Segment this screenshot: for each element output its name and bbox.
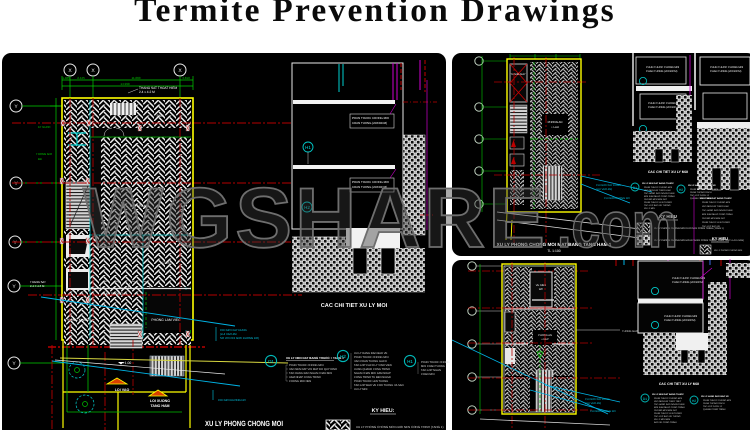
svg-text:CAC CHI TIET XU LY MOI: CAC CHI TIET XU LY MOI [321, 303, 388, 309]
svg-text:XU LY PHONG CHONG MOI: XU LY PHONG CHONG MOI [714, 249, 743, 252]
svg-text:CHONG MOI NEN DAT: CHONG MOI NEN DAT [654, 409, 678, 412]
svg-text:PHUN THUOC CHONG MOI: PHUN THUOC CHONG MOI [352, 116, 389, 120]
svg-text:XU LY HANG RAO BAO VE: XU LY HANG RAO BAO VE [354, 352, 388, 355]
svg-text:TAO LOP BAO VE: TAO LOP BAO VE [702, 225, 721, 228]
svg-text:.com: .com [557, 188, 678, 261]
svg-text:CONG TRINH TU BEN NGOAI: CONG TRINH TU BEN NGOAI [354, 376, 391, 379]
svg-text:CHAN TUONG (20X30CM): CHAN TUONG (20X30CM) [646, 70, 678, 73]
svg-text:CAC CHI TIET XU LY MOI: CAC CHI TIET XU LY MOI [648, 170, 688, 174]
svg-text:XUNG QUANH CONG TRINH: XUNG QUANH CONG TRINH [354, 368, 390, 371]
svg-text:PHUN THUOC LEN TUONG: PHUN THUOC LEN TUONG [354, 380, 388, 383]
svg-text:(LUI VAO 4M): (LUI VAO 4M) [585, 402, 601, 405]
svg-text:PHONG KHACH: PHONG KHACH [65, 318, 91, 322]
svg-text:TAO HANG RAO NGAN CHAN MOI: TAO HANG RAO NGAN CHAN MOI [289, 372, 332, 375]
svg-text:PHUN THUOC LEN TUONG: PHUN THUOC LEN TUONG [654, 412, 682, 415]
svg-text:H2: H2 [340, 354, 346, 359]
svg-text:BAO VE CONG TRINH: BAO VE CONG TRINH [654, 421, 677, 424]
svg-text:PHUN THUOC CHONG MOI: PHUN THUOC CHONG MOI [702, 201, 730, 204]
svg-text:XU LY MOI NEN: XU LY MOI NEN [654, 418, 671, 421]
svg-text:KT NUOC: KT NUOC [38, 125, 51, 129]
svg-text:PHUN THUOC CHONG MOI: PHUN THUOC CHONG MOI [710, 66, 744, 69]
svg-text:TAO LOP CACH LY: TAO LOP CACH LY [703, 405, 723, 408]
svg-text:XU LY NEN DAT BANG THUOC: XU LY NEN DAT BANG THUOC [652, 393, 684, 396]
svg-text:TAO LOP CACH LY: TAO LOP CACH LY [690, 194, 710, 197]
svg-text:PHONG AN: PHONG AN [548, 120, 563, 124]
svg-text:VAO NEN DAT TANG TRET: VAO NEN DAT TANG TRET [654, 400, 682, 403]
svg-text:THONG GIO: THONG GIO [36, 152, 53, 156]
svg-text:Termite Prevention Drawings: Termite Prevention Drawings [134, 0, 616, 29]
svg-text:PHUN THUOC CHONG: PHUN THUOC CHONG [421, 361, 450, 364]
svg-text:NGAN CHAN MOI XAM NHAP: NGAN CHAN MOI XAM NHAP [354, 372, 391, 375]
svg-text:SAN: SAN [157, 114, 165, 118]
svg-text:PHUN THUOC LEN TUONG: PHUN THUOC LEN TUONG [702, 221, 730, 224]
svg-text:+ LAU: + LAU [551, 125, 559, 129]
svg-text:MOI XAM NHAP CONG TRINH: MOI XAM NHAP CONG TRINH [702, 213, 733, 216]
svg-text:CHAN TUONG (20X30CM): CHAN TUONG (20X30CM) [352, 121, 387, 125]
svg-text:3.810: 3.810 [182, 76, 190, 80]
svg-text:PHUN THUOC CHONG MOI: PHUN THUOC CHONG MOI [654, 397, 682, 400]
svg-text:XU LY NEN DAT BANG THUOC: XU LY NEN DAT BANG THUOC [642, 182, 674, 185]
svg-text:SO VOI CHI GIOI DUONG DO): SO VOI CHI GIOI DUONG DO) [220, 336, 259, 340]
svg-text:PHUN THUOC CHONG MOI: PHUN THUOC CHONG MOI [690, 188, 718, 191]
svg-text:BD: BD [38, 157, 42, 161]
svg-text:KY HIEU:: KY HIEU: [372, 408, 395, 414]
svg-text:XU LY PHONG CHONG MOI DUOI NEN: XU LY PHONG CHONG MOI DUOI NEN CONG TRIN… [356, 425, 443, 429]
svg-text:XU LY HANG RAO BAO VE: XU LY HANG RAO BAO VE [701, 395, 729, 398]
svg-text:D1: D1 [268, 359, 274, 364]
svg-text:PHUN THUOC CHONG MOI: PHUN THUOC CHONG MOI [289, 364, 324, 367]
svg-text:PHUN THUOC CHONG MOI: PHUN THUOC CHONG MOI [703, 399, 731, 402]
svg-text:CHAN MOI: CHAN MOI [421, 373, 435, 376]
svg-text:MOI CHAN TUONG: MOI CHAN TUONG [421, 365, 445, 368]
svg-text:XU LY MOI: XU LY MOI [354, 388, 368, 391]
svg-text:2.4 x 4.2 M: 2.4 x 4.2 M [139, 90, 155, 94]
svg-text:TAO LOP NGAN: TAO LOP NGAN [421, 369, 441, 372]
svg-text:TANG HAM: TANG HAM [150, 404, 169, 408]
svg-text:THANG MAY: THANG MAY [510, 73, 525, 76]
svg-text:LOI VAO: LOI VAO [115, 388, 130, 392]
svg-text:TAO LOP CACH LY VINH VIEN: TAO LOP CACH LY VINH VIEN [354, 364, 392, 367]
svg-text:1.485: 1.485 [62, 76, 70, 80]
svg-text:MOI XAM NHAP CONG TRINH: MOI XAM NHAP CONG TRINH [654, 406, 685, 409]
svg-text:CHI GIOI XAY DUNG: CHI GIOI XAY DUNG [585, 398, 610, 401]
svg-text:XU LY NEN DAT BANG THUOC: XU LY NEN DAT BANG THUOC [700, 197, 732, 200]
svg-text:H1: H1 [305, 145, 311, 150]
svg-text:PHONG LAM VIEC: PHONG LAM VIEC [151, 318, 181, 322]
svg-text:WC: WC [539, 288, 543, 291]
svg-text:CHAN TUONG (20X30CM): CHAN TUONG (20X30CM) [664, 319, 696, 322]
svg-text:2.4 X 4.6 M: 2.4 X 4.6 M [30, 284, 45, 288]
svg-text:CHAN TUONG (20X30CM): CHAN TUONG (20X30CM) [672, 281, 704, 284]
svg-text:+1.00: +1.00 [123, 361, 132, 365]
svg-text:VAO NEN DAT TANG HAM: VAO NEN DAT TANG HAM [702, 205, 729, 208]
svg-text:PHUN THUOC CHONG MOI: PHUN THUOC CHONG MOI [354, 356, 389, 359]
svg-text:11.060: 11.060 [132, 76, 141, 80]
svg-text:CHI GIOI DUONG DO: CHI GIOI DUONG DO [218, 398, 246, 402]
svg-text:CHAN TUONG GACH: CHAN TUONG GACH [690, 191, 712, 194]
svg-text:CHI GIOI DUONG DO: CHI GIOI DUONG DO [590, 410, 616, 413]
svg-text:CHAN TUONG GACH: CHAN TUONG GACH [703, 402, 725, 405]
svg-text:TAO HANG RAO NGAN CHAN: TAO HANG RAO NGAN CHAN [702, 209, 733, 212]
svg-text:14.990: 14.990 [120, 82, 130, 86]
svg-text:CHAN TUONG (20X30CM): CHAN TUONG (20X30CM) [710, 70, 742, 73]
svg-text:CHONG MOI NEN DAT: CHONG MOI NEN DAT [702, 217, 726, 220]
svg-text:PHUN THUOC CHONG MOI: PHUN THUOC CHONG MOI [646, 66, 680, 69]
svg-text:XU LY HANG RAO BAO VE: XU LY HANG RAO BAO VE [688, 184, 716, 187]
svg-text:CHI GIOI XAY DUNG: CHI GIOI XAY DUNG [596, 184, 621, 187]
svg-text:XAM NHAP CONG TRINH: XAM NHAP CONG TRINH [289, 376, 321, 379]
svg-text:PHUN THUOC CHONG MOI: PHUN THUOC CHONG MOI [664, 315, 698, 318]
svg-text:H1: H1 [407, 359, 413, 364]
svg-text:QUANH CONG TRINH: QUANH CONG TRINH [703, 408, 726, 411]
svg-text:LOI XUONG: LOI XUONG [150, 399, 170, 403]
svg-text:H2: H2 [679, 188, 683, 192]
svg-text:CHONG MOI NEN: CHONG MOI NEN [289, 380, 311, 383]
svg-text:CAC CHI TIET XU LY MOI: CAC CHI TIET XU LY MOI [659, 382, 699, 386]
svg-text:TAO LOP BAO VE CHO TUONG VA SA: TAO LOP BAO VE CHO TUONG VA SAN [354, 384, 404, 387]
svg-text:H2: H2 [692, 399, 696, 403]
svg-text:2.445: 2.445 [77, 76, 85, 80]
svg-text:WGSHARE: WGSHARE [83, 171, 548, 266]
svg-text:TAO LOP BAO VE TUONG: TAO LOP BAO VE TUONG [654, 415, 681, 418]
svg-text:VAO CHAN TUONG GACH: VAO CHAN TUONG GACH [354, 360, 387, 363]
svg-text:VAO NEN DAT VOI MAT DO QUY DIN: VAO NEN DAT VOI MAT DO QUY DINH [289, 368, 337, 371]
svg-text:KY HIEU: KY HIEU [712, 236, 728, 241]
svg-text:CHAN TUONG (20X30CM): CHAN TUONG (20X30CM) [648, 106, 680, 109]
svg-text:TAO HANG RAO NGAN CHAN: TAO HANG RAO NGAN CHAN [654, 403, 685, 406]
svg-text:XU LY NEN DAT BANG THUOC + TAN: XU LY NEN DAT BANG THUOC + TANG 1 [286, 356, 344, 360]
svg-text:D1: D1 [643, 397, 647, 401]
svg-text:XU LY PHONG CHONG MOI: XU LY PHONG CHONG MOI [205, 419, 283, 428]
